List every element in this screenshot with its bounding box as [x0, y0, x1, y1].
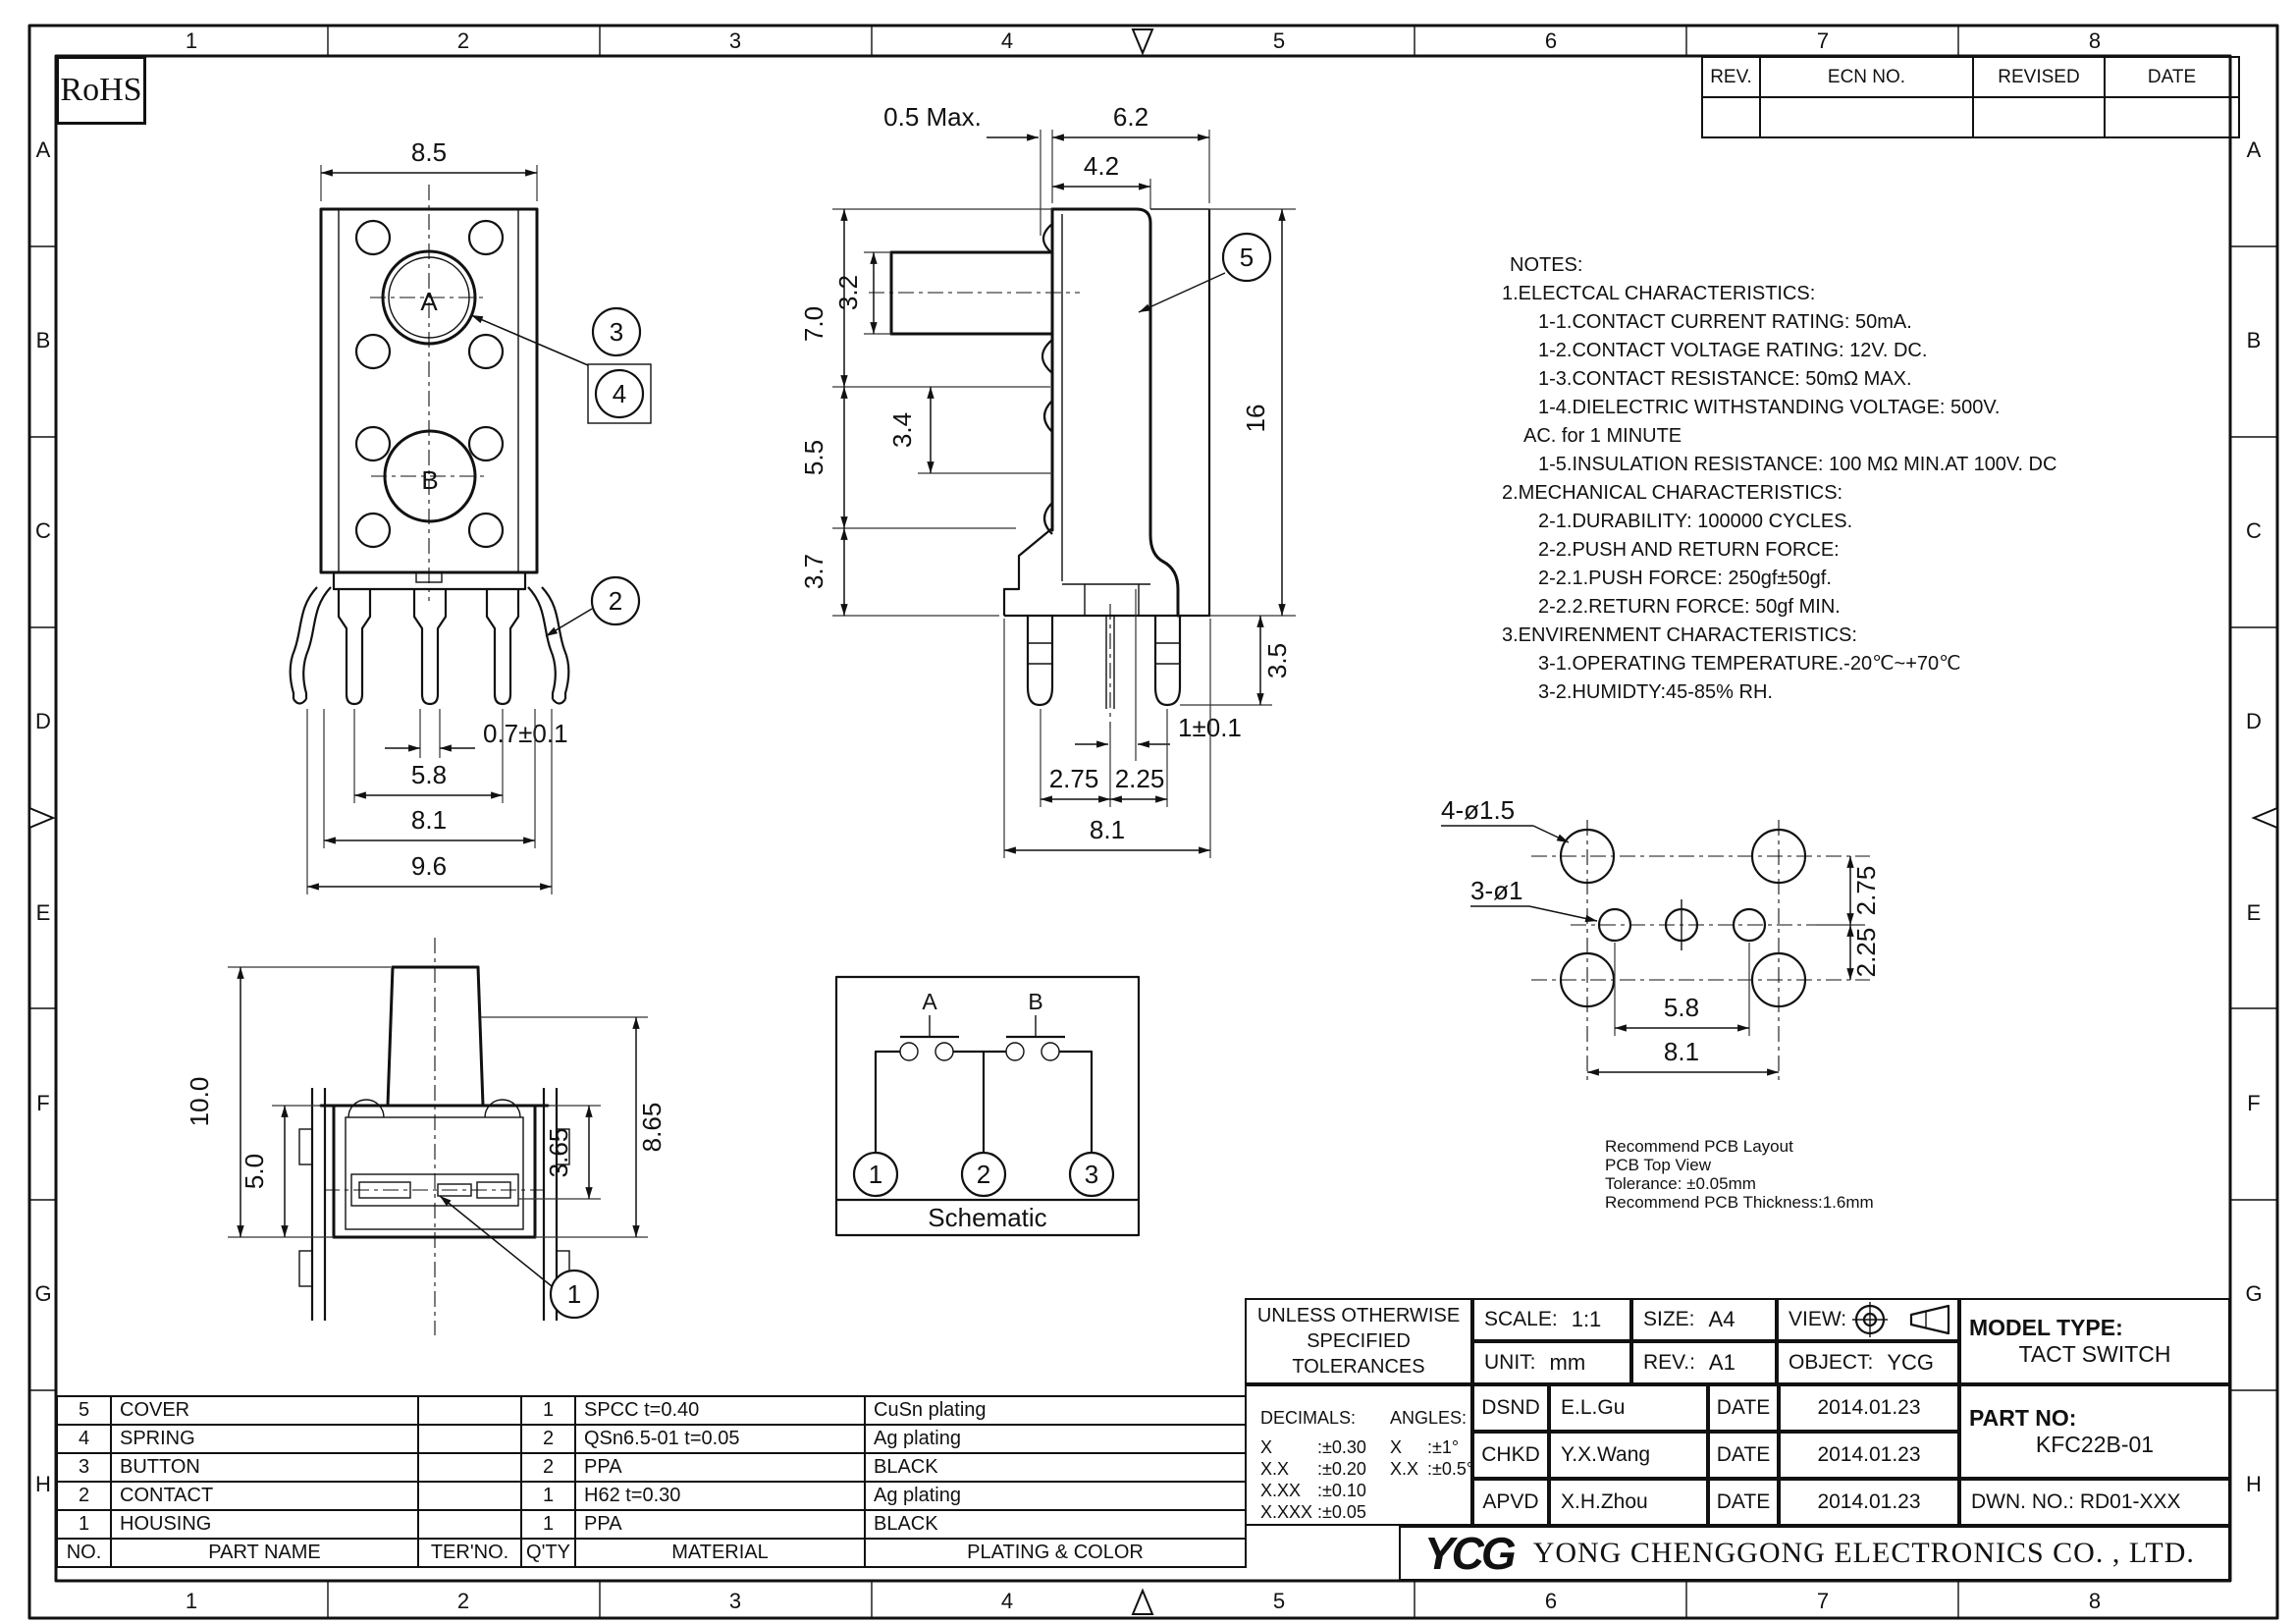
part-plating: Ag plating: [865, 1425, 1246, 1453]
tol-value: :±0.05: [1317, 1502, 1366, 1522]
col-header-terno: TER'NO.: [418, 1539, 521, 1567]
part-name: SPRING: [111, 1425, 418, 1453]
part-material: H62 t=0.30: [575, 1482, 865, 1510]
dimension-label: 8.5: [411, 137, 447, 167]
dwn-no-value: DWN. NO.: RD01-XXX: [1961, 1490, 2181, 1514]
rev-cell: REV.: A1: [1631, 1341, 1777, 1384]
notes-block: NOTES: 1.ELECTCAL CHARACTERISTICS: 1-1.C…: [1502, 251, 2052, 707]
fold-arrow-left-icon: [29, 808, 53, 828]
note-line: 1-1.CONTACT CURRENT RATING: 50mA.: [1538, 308, 2052, 337]
dimension-label: 8.1: [411, 805, 447, 835]
zone-letter: F: [31, 1091, 55, 1116]
part-qty: 1: [521, 1510, 575, 1539]
tolerance-body-cell: DECIMALS: ANGLES: X:±0.30 X.X:±0.20 X.XX…: [1245, 1384, 1472, 1526]
front-view: 10.0 5.0 3.65 8.65 1: [185, 938, 667, 1335]
chkd-role-cell: CHKD: [1472, 1432, 1549, 1479]
top-view: A B 8.5 0.7±0.1 5.8: [291, 137, 651, 894]
view-cell: VIEW:: [1777, 1298, 1959, 1341]
model-type-cell: MODEL TYPE: TACT SWITCH: [1959, 1298, 2230, 1384]
chkd-name-cell: Y.X.Wang: [1549, 1432, 1708, 1479]
date-header: DATE: [2105, 57, 2239, 97]
company-logo: YCG: [1424, 1527, 1514, 1580]
dimension-label: 3.65: [544, 1128, 573, 1178]
schematic-terminal-2: 2: [977, 1160, 990, 1189]
chkd-date-label-cell: DATE: [1708, 1432, 1779, 1479]
zone-letter: F: [2242, 1091, 2266, 1116]
dsnd-name-cell: E.L.Gu: [1549, 1384, 1708, 1432]
zone-number: 3: [720, 1589, 751, 1614]
revised-header: REVISED: [1973, 57, 2105, 97]
tol-name: X.XXX: [1260, 1502, 1317, 1523]
date-empty-cell: [2105, 97, 2239, 137]
table-row: 1 HOUSING 1 PPA BLACK: [57, 1510, 1246, 1539]
apvd-date-cell: 2014.01.23: [1779, 1479, 1959, 1526]
part-name: HOUSING: [111, 1510, 418, 1539]
ang-value: :±1°: [1427, 1437, 1459, 1457]
dimension-label: 10.0: [185, 1077, 214, 1127]
drawing-sheet: A B 8.5 0.7±0.1 5.8: [0, 0, 2296, 1624]
dsnd-role-cell: DSND: [1472, 1384, 1549, 1432]
size-label: SIZE:: [1633, 1308, 1695, 1331]
part-plating: BLACK: [865, 1510, 1246, 1539]
part-no: 1: [57, 1510, 111, 1539]
contact-b-label: B: [421, 465, 438, 495]
dwn-no-cell: DWN. NO.: RD01-XXX: [1959, 1479, 2230, 1526]
part-plating: BLACK: [865, 1453, 1246, 1482]
apvd-role-cell: APVD: [1472, 1479, 1549, 1526]
unit-value: mm: [1536, 1350, 1586, 1376]
zone-letter: H: [31, 1472, 55, 1497]
note-line: 1-3.CONTACT RESISTANCE: 50mΩ MAX.: [1538, 365, 2052, 394]
table-row: 3 BUTTON 2 PPA BLACK: [57, 1453, 1246, 1482]
part-name: CONTACT: [111, 1482, 418, 1510]
ang-name: X: [1390, 1437, 1427, 1458]
dsnd-date-label-cell: DATE: [1708, 1384, 1779, 1432]
zone-letter: D: [31, 709, 55, 734]
apvd-date-label-cell: DATE: [1708, 1479, 1779, 1526]
zone-number: 3: [720, 28, 751, 54]
table-row: 5 COVER 1 SPCC t=0.40 CuSn plating: [57, 1396, 1246, 1425]
object-cell: OBJECT: YCG: [1777, 1341, 1959, 1384]
dsnd-name: E.L.Gu: [1551, 1396, 1625, 1420]
size-cell: SIZE: A4: [1631, 1298, 1777, 1341]
dimension-label: 0.5 Max.: [883, 102, 982, 132]
part-qty: 2: [521, 1453, 575, 1482]
ecn-header: ECN NO.: [1760, 57, 1973, 97]
zone-number: 7: [1807, 28, 1839, 54]
unit-label: UNIT:: [1474, 1351, 1536, 1375]
dimension-label: 7.0: [799, 306, 828, 342]
zone-number: 4: [991, 28, 1023, 54]
dimension-label: 8.1: [1090, 815, 1125, 844]
table-row: 4 SPRING 2 QSn6.5-01 t=0.05 Ag plating: [57, 1425, 1246, 1453]
tolerance-header-line1: UNLESS OTHERWISE: [1257, 1303, 1460, 1328]
part-material: SPCC t=0.40: [575, 1396, 865, 1425]
col-header-no: NO.: [57, 1539, 111, 1567]
note-line: 3-1.OPERATING TEMPERATURE.-20℃~+70℃: [1538, 650, 2052, 678]
zone-letter: E: [2242, 900, 2266, 926]
model-type-label: MODEL TYPE:: [1961, 1315, 2228, 1341]
pcb-large-hole-label: 4-ø1.5: [1441, 795, 1515, 825]
rev-empty-cell: [1702, 97, 1760, 137]
zone-letter: G: [31, 1281, 55, 1307]
dimension-label: 5.8: [411, 760, 447, 789]
schematic-terminal-3: 3: [1085, 1160, 1098, 1189]
note-line: 2-2.1.PUSH FORCE: 250gf±50gf.: [1538, 565, 2052, 593]
note-line: 2-2.PUSH AND RETURN FORCE:: [1538, 536, 2052, 565]
dimension-label: 4.2: [1084, 151, 1119, 181]
company-name: YONG CHENGGONG ELECTRONICS CO. , LTD.: [1533, 1537, 2195, 1570]
part-no-label: PART NO:: [1961, 1405, 2228, 1432]
part-no: 4: [57, 1425, 111, 1453]
balloon-2: 2: [609, 586, 622, 616]
tolerance-header-cell: UNLESS OTHERWISE SPECIFIED TOLERANCES: [1245, 1298, 1472, 1384]
zone-number: 2: [448, 1589, 479, 1614]
part-name: COVER: [111, 1396, 418, 1425]
dimension-label: 8.1: [1664, 1037, 1699, 1066]
zone-letter: B: [31, 328, 55, 353]
scale-value: 1:1: [1558, 1307, 1602, 1332]
dimension-label: 5.0: [240, 1154, 269, 1189]
part-qty: 1: [521, 1396, 575, 1425]
tol-value: :±0.10: [1317, 1481, 1366, 1500]
ang-name: X.X: [1390, 1459, 1427, 1480]
schematic-b-label: B: [1028, 989, 1042, 1014]
part-terno: [418, 1453, 521, 1482]
dimension-label: 16: [1241, 405, 1270, 433]
view-label: VIEW:: [1779, 1308, 1846, 1331]
model-type-value: TACT SWITCH: [1961, 1341, 2228, 1368]
scale-cell: SCALE: 1:1: [1472, 1298, 1631, 1341]
col-header-qty: Q'TY: [521, 1539, 575, 1567]
dimension-label: 3.5: [1262, 643, 1292, 678]
dimension-label: 2.75: [1049, 764, 1099, 793]
table-row: 2 CONTACT 1 H62 t=0.30 Ag plating: [57, 1482, 1246, 1510]
revised-empty-cell: [1973, 97, 2105, 137]
decimals-label: DECIMALS:: [1260, 1408, 1356, 1429]
tol-name: X.X: [1260, 1459, 1317, 1480]
zone-number: 6: [1535, 1589, 1567, 1614]
rev-label: REV.:: [1633, 1351, 1695, 1375]
ecn-empty-cell: [1760, 97, 1973, 137]
note-line: 1-5.INSULATION RESISTANCE: 100 MΩ MIN.AT…: [1538, 451, 2052, 479]
note-line: 2.MECHANICAL CHARACTERISTICS:: [1502, 479, 2052, 508]
note-line: 1.ELECTCAL CHARACTERISTICS:: [1502, 280, 2052, 308]
part-no-cell: PART NO: KFC22B-01: [1959, 1384, 2230, 1479]
part-terno: [418, 1396, 521, 1425]
dimension-label: 3.7: [799, 554, 828, 589]
pcb-layout-view: 4-ø1.5 3-ø1 2.75 2.25 5.8 8.1: [1441, 795, 1881, 1080]
zone-number: 1: [176, 28, 207, 54]
balloon-4: 4: [613, 379, 626, 408]
pcb-note-line: Recommend PCB Thickness:1.6mm: [1605, 1193, 1874, 1212]
zone-number: 7: [1807, 1589, 1839, 1614]
balloon-1: 1: [567, 1279, 581, 1309]
pcb-small-hole-label: 3-ø1: [1470, 876, 1522, 905]
part-plating: CuSn plating: [865, 1396, 1246, 1425]
part-no-value: KFC22B-01: [1961, 1432, 2228, 1458]
col-header-material: MATERIAL: [575, 1539, 865, 1567]
dimension-label: 3.4: [887, 412, 917, 448]
zone-number: 2: [448, 28, 479, 54]
zone-number: 5: [1263, 1589, 1295, 1614]
rev-value: A1: [1695, 1350, 1735, 1376]
angles-label: ANGLES:: [1390, 1408, 1467, 1429]
part-no: 5: [57, 1396, 111, 1425]
schematic-a-label: A: [922, 989, 937, 1014]
part-qty: 1: [521, 1482, 575, 1510]
part-qty: 2: [521, 1425, 575, 1453]
zone-number: 8: [2079, 28, 2110, 54]
dimension-label: 0.7±0.1: [483, 719, 568, 748]
apvd-name-cell: X.H.Zhou: [1549, 1479, 1708, 1526]
chkd-name: Y.X.Wang: [1551, 1443, 1650, 1467]
zone-letter: A: [2242, 137, 2266, 163]
zone-number: 5: [1263, 28, 1295, 54]
contact-a-label: A: [420, 287, 438, 316]
note-line: 2-2.2.RETURN FORCE: 50gf MIN.: [1538, 593, 2052, 622]
unit-cell: UNIT: mm: [1472, 1341, 1631, 1384]
zone-letter: E: [31, 900, 55, 926]
schematic-view: Schematic A B 1 2 3: [836, 977, 1139, 1235]
zone-number: 1: [176, 1589, 207, 1614]
dimension-label: 2.25: [1851, 928, 1881, 978]
object-value: YCG: [1873, 1350, 1934, 1376]
parts-header-row: NO. PART NAME TER'NO. Q'TY MATERIAL PLAT…: [57, 1539, 1246, 1567]
zone-number: 8: [2079, 1589, 2110, 1614]
fold-arrow-right-icon: [2254, 808, 2277, 828]
notes-title: NOTES:: [1502, 251, 2052, 280]
company-cell: YCG YONG CHENGGONG ELECTRONICS CO. , LTD…: [1399, 1526, 2230, 1581]
balloon-5: 5: [1240, 243, 1254, 272]
part-terno: [418, 1482, 521, 1510]
dimension-label: 2.25: [1115, 764, 1165, 793]
note-line: 1-4.DIELECTRIC WITHSTANDING VOLTAGE: 500…: [1538, 394, 2052, 422]
rohs-label: RoHS: [60, 72, 141, 109]
tol-value: :±0.20: [1317, 1459, 1366, 1479]
fold-arrow-top-icon: [1133, 29, 1152, 53]
ang-value: :±0.5°: [1427, 1459, 1473, 1479]
apvd-name: X.H.Zhou: [1551, 1490, 1648, 1514]
pcb-notes: Recommend PCB Layout PCB Top View Tolera…: [1605, 1137, 1874, 1212]
pcb-note-line: Tolerance: ±0.05mm: [1605, 1174, 1874, 1193]
zone-letter: C: [31, 518, 55, 544]
revision-table: REV. ECN NO. REVISED DATE: [1701, 56, 2240, 138]
col-header-plating: PLATING & COLOR: [865, 1539, 1246, 1567]
dimension-label: 2.75: [1851, 866, 1881, 916]
parts-table: 5 COVER 1 SPCC t=0.40 CuSn plating 4 SPR…: [56, 1395, 1247, 1568]
note-line: 1-2.CONTACT VOLTAGE RATING: 12V. DC.: [1538, 337, 2052, 365]
zone-letter: A: [31, 137, 55, 163]
object-label: OBJECT:: [1779, 1351, 1873, 1375]
zone-letter: C: [2242, 518, 2266, 544]
scale-label: SCALE:: [1474, 1308, 1558, 1331]
dimension-label: 8.65: [637, 1103, 667, 1153]
chkd-date-cell: 2014.01.23: [1779, 1432, 1959, 1479]
tolerance-header-line2: SPECIFIED TOLERANCES: [1247, 1328, 1470, 1380]
part-plating: Ag plating: [865, 1482, 1246, 1510]
note-line: AC. for 1 MINUTE: [1523, 422, 2052, 451]
rohs-mark: RoHS: [56, 56, 146, 125]
side-view: 0.5 Max. 6.2 4.2 7.0 3.2 3.4 5.5 3.7: [799, 102, 1296, 858]
dsnd-date-cell: 2014.01.23: [1779, 1384, 1959, 1432]
schematic-terminal-1: 1: [869, 1160, 882, 1189]
fold-arrow-bottom-icon: [1133, 1591, 1152, 1614]
dimension-label: 9.6: [411, 851, 447, 881]
zone-number: 6: [1535, 28, 1567, 54]
zone-letter: D: [2242, 709, 2266, 734]
note-line: 2-1.DURABILITY: 100000 CYCLES.: [1538, 508, 2052, 536]
rev-header: REV.: [1702, 57, 1760, 97]
dimension-label: 5.8: [1664, 993, 1699, 1022]
dimension-label: 6.2: [1113, 102, 1148, 132]
part-material: PPA: [575, 1453, 865, 1482]
balloon-3: 3: [610, 317, 623, 347]
tol-name: X.XX: [1260, 1481, 1317, 1501]
note-line: 3-2.HUMIDTY:45-85% RH.: [1538, 678, 2052, 707]
zone-number: 4: [991, 1589, 1023, 1614]
size-value: A4: [1695, 1307, 1735, 1332]
dimension-label: 3.2: [833, 275, 863, 310]
part-material: QSn6.5-01 t=0.05: [575, 1425, 865, 1453]
zone-letter: H: [2242, 1472, 2266, 1497]
pcb-note-line: Recommend PCB Layout: [1605, 1137, 1874, 1156]
part-terno: [418, 1510, 521, 1539]
tol-name: X: [1260, 1437, 1317, 1458]
part-no: 3: [57, 1453, 111, 1482]
col-header-part-name: PART NAME: [111, 1539, 418, 1567]
part-material: PPA: [575, 1510, 865, 1539]
zone-letter: G: [2242, 1281, 2266, 1307]
schematic-caption: Schematic: [928, 1203, 1046, 1232]
tol-value: :±0.30: [1317, 1437, 1366, 1457]
part-terno: [418, 1425, 521, 1453]
note-line: 3.ENVIRENMENT CHARACTERISTICS:: [1502, 622, 2052, 650]
zone-letter: B: [2242, 328, 2266, 353]
dimension-label: 5.5: [799, 440, 828, 475]
part-name: BUTTON: [111, 1453, 418, 1482]
part-no: 2: [57, 1482, 111, 1510]
pcb-note-line: PCB Top View: [1605, 1156, 1874, 1174]
